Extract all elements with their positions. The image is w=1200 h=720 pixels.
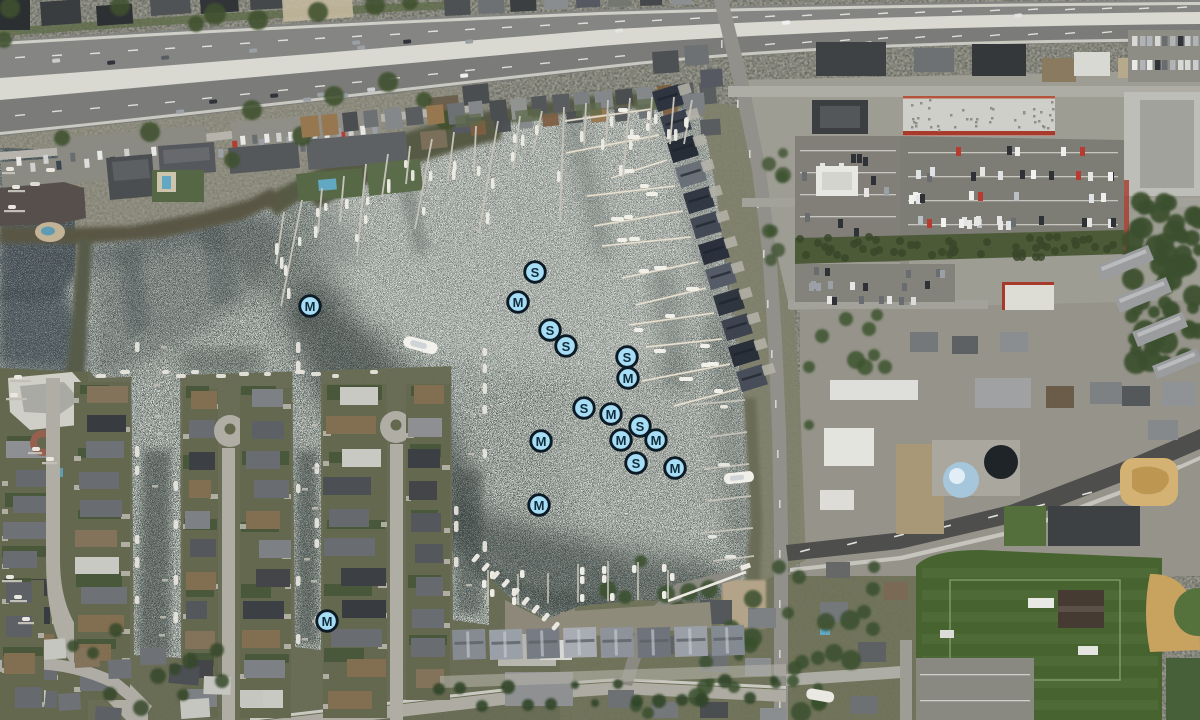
svg-text:M: M: [616, 433, 627, 448]
svg-text:S: S: [636, 419, 645, 434]
svg-text:M: M: [670, 461, 681, 476]
svg-text:M: M: [651, 433, 662, 448]
svg-text:S: S: [632, 456, 641, 471]
svg-text:S: S: [531, 265, 540, 280]
svg-text:S: S: [623, 350, 632, 365]
svg-text:M: M: [305, 299, 316, 314]
svg-text:M: M: [606, 407, 617, 422]
svg-text:M: M: [623, 371, 634, 386]
svg-text:M: M: [534, 498, 545, 513]
svg-text:S: S: [580, 401, 589, 416]
svg-text:M: M: [322, 614, 333, 629]
svg-text:S: S: [562, 339, 571, 354]
svg-text:M: M: [536, 434, 547, 449]
svg-text:S: S: [546, 323, 555, 338]
svg-text:M: M: [513, 295, 524, 310]
